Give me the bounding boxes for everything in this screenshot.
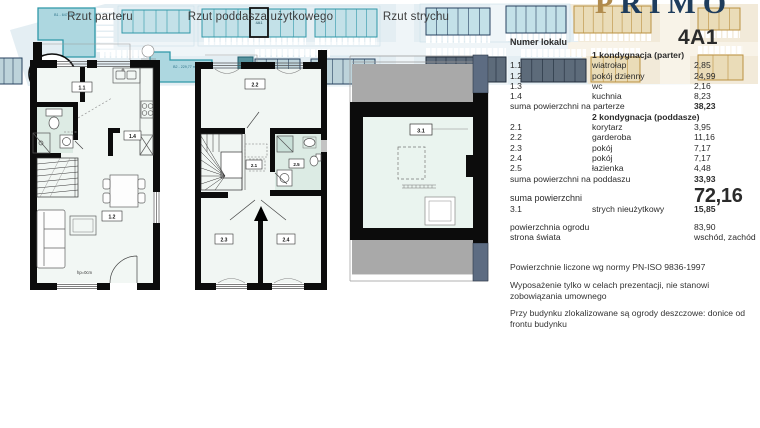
brand-logo: PRIMO xyxy=(578,0,750,21)
section1-header-row: 1 kondygnacja (parter) xyxy=(510,50,758,60)
floor-plan-strych: 3.1 xyxy=(340,45,500,290)
note-rain-gardens: Przy budynku zlokalizowane są ogrody des… xyxy=(510,308,753,330)
total-area-row: suma powierzchni 72,16 xyxy=(510,187,758,204)
footnotes: Powierzchnie liczone wg normy PN-ISO 983… xyxy=(510,262,753,337)
brand-logo-text: PRIMO xyxy=(595,0,733,21)
note-furnishing: Wyposażenie tylko w celach prezentacji, … xyxy=(510,280,753,302)
room-label-2-3: 2.3 xyxy=(221,238,228,244)
total-area-value: 72,16 xyxy=(694,188,758,204)
area-row: 2.4pokój7,17 xyxy=(510,153,758,163)
section2-header-row: 2 kondygnacja (poddasze) xyxy=(510,112,758,122)
plan-title-strych: Rzut strychu xyxy=(346,11,486,23)
orientation-row: strona światawschód, zachód xyxy=(510,232,758,242)
room-label-2-4: 2.4 xyxy=(283,238,290,244)
unit-card-page: PRIMO Rzut parteru Rzut poddasza użytkow… xyxy=(0,0,760,428)
attic-row: 3.1strych nieużytkowy15,85 xyxy=(510,204,758,214)
plan1-thin-lines xyxy=(42,44,156,60)
section1-title: 1 kondygnacja (parter) xyxy=(592,50,758,60)
section1-sum-row: suma powierzchni na parterze38,23 xyxy=(510,101,758,111)
plan-title-parter: Rzut parteru xyxy=(30,11,170,23)
area-row: 2.5łazienka4,48 xyxy=(510,163,758,173)
unit-info-panel: Numer lokalu 4A1 1 kondygnacja (parter) … xyxy=(510,26,758,243)
area-row: 1.2pokój dzienny24,99 xyxy=(510,71,758,81)
plan-title-poddasze: Rzut poddasza użytkowego xyxy=(183,11,338,23)
section2-sum-row: suma powierzchni na poddaszu33,93 xyxy=(510,174,758,184)
area-row: 2.3pokój7,17 xyxy=(510,143,758,153)
plan2-roof-line xyxy=(205,55,257,62)
parapet-height-label: hp=0cm xyxy=(77,270,93,275)
unit-header: Numer lokalu 4A1 xyxy=(510,26,758,47)
area-row: 2.1korytarz3,95 xyxy=(510,122,758,132)
room-label-1-1: 1.1 xyxy=(79,86,86,92)
room-label-2-5: 2.5 xyxy=(293,162,300,167)
area-row: 1.1wiatrołap2,85 xyxy=(510,60,758,70)
logo-gold-letter: P xyxy=(595,0,620,20)
room-label-2-1: 2.1 xyxy=(251,163,258,168)
area-row: 1.4kuchnia8,23 xyxy=(510,91,758,101)
room-label-1-2: 1.2 xyxy=(109,215,116,221)
total-area-label: suma powierzchni xyxy=(510,193,694,204)
garden-row: powierzchnia ogrodu83,90 xyxy=(510,222,758,232)
floor-plan-parter: 1.1 1.4 1.2 hp=0cm xyxy=(20,40,170,295)
floor-plan-poddasze: 2.2 2.1 2.5 2.3 2.4 xyxy=(185,40,335,295)
room-label-2-2: 2.2 xyxy=(252,83,259,89)
note-norm: Powierzchnie liczone wg normy PN-ISO 983… xyxy=(510,262,753,273)
area-row: 2.2garderoba11,16 xyxy=(510,132,758,142)
logo-navy-letters: RIMO xyxy=(620,0,733,20)
section2-title: 2 kondygnacja (poddasze) xyxy=(592,112,758,122)
plan3-hatch-opening xyxy=(425,197,455,225)
unit-number: 4A1 xyxy=(678,28,718,47)
numer-lokalu-label: Numer lokalu xyxy=(510,37,567,47)
room-label-1-4: 1.4 xyxy=(129,134,136,140)
room-label-3-1: 3.1 xyxy=(417,129,425,135)
area-row: 1.3wc2,16 xyxy=(510,81,758,91)
